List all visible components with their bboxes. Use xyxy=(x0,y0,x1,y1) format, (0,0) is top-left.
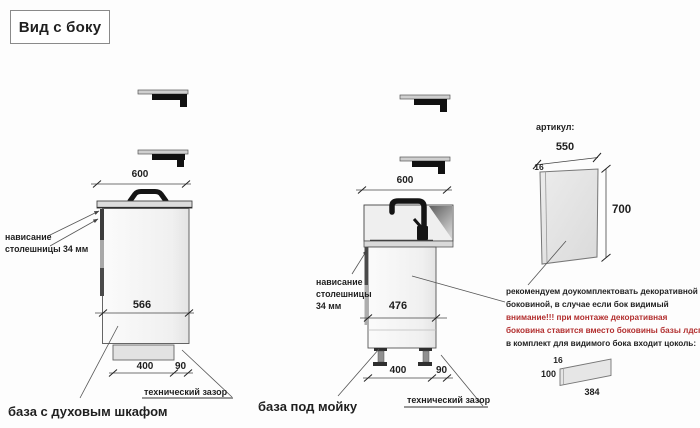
panel-dim-width: 550 xyxy=(547,142,583,153)
sink-overhang-line3: 34 мм xyxy=(316,300,372,312)
plinth-strip xyxy=(560,359,611,386)
panel-note-line2: боковиной, в случае если бок видимый xyxy=(506,298,700,311)
sink-dim-body-depth: 476 xyxy=(380,301,416,312)
adjustable-leg-icon xyxy=(373,348,387,366)
oven-tech-gap-label: технический зазор xyxy=(144,388,227,397)
oven-overhang-label: нависание столешницы 34 мм xyxy=(5,232,88,255)
plinth-dim-length: 384 xyxy=(578,387,606,397)
oven-overhang-line2: столешницы 34 мм xyxy=(5,244,88,256)
oven-dim-body-depth: 566 xyxy=(124,300,160,311)
view-title-text: Вид с боку xyxy=(19,19,102,36)
technical-linework xyxy=(0,0,700,428)
oven-dim-gap: 90 xyxy=(171,362,190,372)
plinth-dim-height: 100 xyxy=(532,369,556,379)
sink-dim-top-width: 600 xyxy=(387,176,423,186)
plinth xyxy=(113,345,174,360)
oven-dim-top-width: 600 xyxy=(122,170,158,180)
mounting-bracket-icon xyxy=(138,90,188,107)
sink-overhang-line1: нависание xyxy=(316,276,372,288)
panel-note-block: рекомендуем доукомплектовать декоративно… xyxy=(506,285,700,350)
adjustable-leg-icon xyxy=(418,348,432,366)
oven-base-name: база с духовым шкафом xyxy=(8,405,168,418)
panel-warning-line1: внимание!!! при монтаже декоративная xyxy=(506,311,700,324)
panel-note-line3: в комплект для видимого бока входит цоко… xyxy=(506,337,700,350)
cabinet-body xyxy=(103,209,190,344)
sink-dim-gap: 90 xyxy=(432,366,451,376)
panel-warning-line2: боковина ставится вместо боковины базы л… xyxy=(506,324,700,337)
plinth-dim-thickness: 16 xyxy=(549,356,567,365)
oven-overhang-line1: нависание xyxy=(5,232,88,244)
artikul-heading: артикул: xyxy=(536,122,574,132)
panel-dim-height: 700 xyxy=(612,205,642,216)
sink-overhang-label: нависание столешницы 34 мм xyxy=(316,276,372,312)
sink-base-name: база под мойку xyxy=(258,400,357,413)
cabinet-body xyxy=(368,247,436,348)
drawing-canvas: Вид с боку 600 566 400 90 нависание стол… xyxy=(0,0,700,428)
mounting-bracket-icon xyxy=(138,150,188,167)
mounting-bracket-icon xyxy=(400,157,450,174)
sink-overhang-line2: столешницы xyxy=(316,288,372,300)
panel-note-line1: рекомендуем доукомплектовать декоративно… xyxy=(506,285,700,298)
panel-dim-thickness: 16 xyxy=(531,163,547,172)
sink-dim-plinth: 400 xyxy=(380,366,416,376)
view-title: Вид с боку xyxy=(10,10,110,44)
mounting-bracket-icon xyxy=(400,95,450,112)
oven-dim-plinth: 400 xyxy=(127,362,163,372)
oven-handle-icon xyxy=(130,192,166,202)
decor-panel-drawing xyxy=(528,153,611,386)
sink-tech-gap-label: технический зазор xyxy=(407,396,490,405)
decor-side-panel xyxy=(540,169,598,264)
